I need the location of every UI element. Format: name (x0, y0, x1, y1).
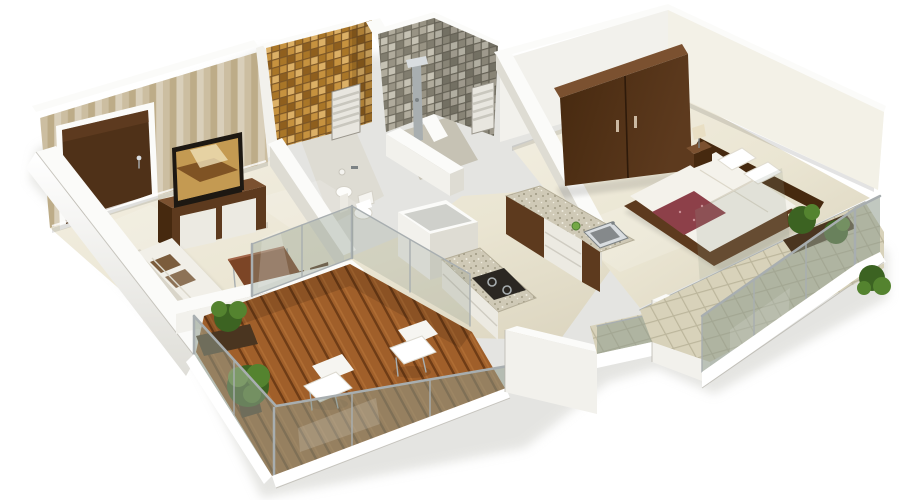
apartment-3d-floor-plan (0, 0, 900, 500)
wardrobe-handle (616, 120, 619, 132)
shrub (229, 301, 247, 319)
louvered-window (332, 84, 360, 140)
wardrobe-handle (634, 116, 637, 128)
paper-holder (351, 166, 358, 169)
vegetable (572, 222, 580, 230)
shrub (873, 277, 891, 295)
runner-dot (693, 219, 695, 221)
grey-mosaic-wall-left (378, 18, 434, 132)
shower-column-highlight (414, 70, 415, 138)
shrub (857, 281, 871, 295)
sink-tap (611, 221, 615, 225)
toilet-paper-roll (339, 169, 345, 175)
door-handle (137, 156, 142, 161)
shrub (804, 204, 820, 220)
shrub (211, 301, 227, 317)
shower-knob (415, 98, 419, 102)
screenshot-root (0, 0, 900, 500)
louvered-window-2 (472, 82, 494, 134)
runner-dot (679, 211, 681, 213)
